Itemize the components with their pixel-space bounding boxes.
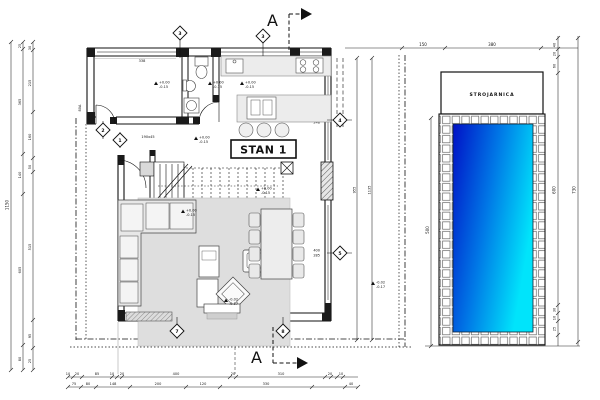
svg-text:80: 80 bbox=[18, 357, 22, 361]
floor-plan-svg: 1150 25 365 140 605 80 30 215 160 50 515… bbox=[0, 0, 600, 400]
bubble-3a: 3 bbox=[173, 26, 187, 40]
svg-text:150: 150 bbox=[419, 42, 427, 47]
bar-stools bbox=[239, 123, 289, 137]
bubble-5: 5 bbox=[333, 246, 347, 260]
svg-text:600: 600 bbox=[552, 186, 557, 194]
svg-text:1135: 1135 bbox=[368, 186, 372, 195]
svg-text:200: 200 bbox=[155, 382, 162, 386]
svg-text:3: 3 bbox=[178, 31, 181, 37]
svg-text:40: 40 bbox=[349, 382, 353, 386]
svg-text:80: 80 bbox=[86, 382, 90, 386]
wc-tank bbox=[195, 57, 208, 66]
pool-water bbox=[453, 124, 533, 332]
svg-text:20: 20 bbox=[231, 372, 235, 376]
bubble-3b: 3 bbox=[256, 29, 270, 43]
dining-set bbox=[249, 209, 304, 279]
svg-text:30: 30 bbox=[553, 308, 557, 312]
svg-text:-0.15: -0.15 bbox=[261, 191, 270, 195]
pilaster-column bbox=[321, 162, 333, 200]
wc-bowl bbox=[196, 66, 207, 79]
svg-text:-0.15: -0.15 bbox=[199, 140, 208, 144]
section-arrow-bottom bbox=[297, 357, 308, 369]
svg-text:-0.15: -0.15 bbox=[159, 85, 168, 89]
svg-text:8: 8 bbox=[281, 329, 284, 335]
svg-text:140: 140 bbox=[18, 172, 22, 179]
bubble-1: 1 bbox=[113, 133, 127, 147]
svg-text:1: 1 bbox=[118, 138, 121, 144]
svg-text:330: 330 bbox=[263, 382, 270, 386]
svg-text:515: 515 bbox=[28, 244, 32, 251]
cooktop bbox=[296, 58, 323, 73]
svg-text:-0.17: -0.17 bbox=[229, 302, 238, 306]
svg-text:3: 3 bbox=[261, 34, 264, 40]
kitchen bbox=[221, 56, 331, 137]
section-marker-top: A bbox=[267, 8, 312, 50]
svg-text:10: 10 bbox=[553, 316, 557, 320]
svg-text:25: 25 bbox=[553, 327, 557, 331]
svg-text:20: 20 bbox=[120, 372, 124, 376]
svg-text:10: 10 bbox=[339, 372, 343, 376]
svg-text:95: 95 bbox=[28, 334, 32, 338]
svg-text:-0.17: -0.17 bbox=[376, 285, 385, 289]
svg-text:75: 75 bbox=[72, 382, 76, 386]
svg-text:400: 400 bbox=[173, 372, 180, 376]
svg-text:-0.15: -0.15 bbox=[245, 85, 254, 89]
floor-plan-drawing: 1150 25 365 140 605 80 30 215 160 50 515… bbox=[0, 0, 600, 400]
pool-room-label: STROJARNICA bbox=[469, 92, 514, 98]
svg-text:148: 148 bbox=[110, 382, 117, 386]
bubble-2: 2 bbox=[96, 123, 110, 137]
svg-text:380: 380 bbox=[488, 42, 496, 47]
dim-left-total: 1150 bbox=[5, 199, 10, 210]
svg-text:120: 120 bbox=[200, 382, 207, 386]
svg-text:60: 60 bbox=[553, 64, 557, 68]
apartment-label: STAN 1 bbox=[231, 140, 296, 158]
svg-text:40: 40 bbox=[553, 43, 557, 47]
svg-text:A: A bbox=[267, 11, 278, 30]
svg-text:500: 500 bbox=[425, 226, 430, 234]
svg-text:20: 20 bbox=[328, 372, 332, 376]
svg-text:730: 730 bbox=[572, 186, 577, 194]
svg-text:A: A bbox=[251, 348, 262, 367]
svg-text:285: 285 bbox=[313, 254, 320, 258]
svg-text:STAN 1: STAN 1 bbox=[240, 144, 287, 157]
hall-note: 190x45 bbox=[141, 135, 154, 139]
svg-text:215: 215 bbox=[28, 80, 32, 87]
svg-text:10: 10 bbox=[66, 372, 70, 376]
section-arrow-top bbox=[301, 8, 312, 20]
pool-area: STROJARNICA bbox=[439, 72, 545, 345]
svg-text:85: 85 bbox=[95, 372, 99, 376]
svg-text:25: 25 bbox=[18, 44, 22, 48]
bathroom-fixtures bbox=[183, 57, 208, 113]
svg-text:4: 4 bbox=[338, 118, 341, 124]
bubble-4: 4 bbox=[333, 113, 347, 127]
svg-text:2: 2 bbox=[101, 128, 104, 134]
svg-text:365: 365 bbox=[18, 99, 22, 106]
svg-text:50: 50 bbox=[28, 165, 32, 169]
svg-text:605: 605 bbox=[18, 267, 22, 274]
svg-text:7: 7 bbox=[175, 329, 178, 335]
svg-text:5: 5 bbox=[338, 251, 341, 257]
svg-text:160: 160 bbox=[28, 134, 32, 141]
kitchen-sink bbox=[226, 59, 243, 73]
svg-text:10: 10 bbox=[110, 372, 114, 376]
svg-text:310: 310 bbox=[278, 372, 285, 376]
svg-text:400: 400 bbox=[313, 249, 320, 253]
svg-text:955: 955 bbox=[353, 187, 357, 194]
svg-text:25: 25 bbox=[28, 359, 32, 363]
tv-bench bbox=[204, 304, 240, 319]
bedroom-window-dim: 338 bbox=[139, 59, 146, 63]
island-sink bbox=[247, 97, 276, 119]
entry-mat bbox=[126, 312, 172, 321]
coffee-tables bbox=[197, 246, 219, 307]
svg-text:20: 20 bbox=[553, 52, 557, 56]
svg-text:-0.15: -0.15 bbox=[213, 85, 222, 89]
svg-text:-0.15: -0.15 bbox=[186, 213, 195, 217]
svg-text:20: 20 bbox=[75, 372, 79, 376]
door-note: 80A bbox=[78, 104, 82, 111]
svg-text:30: 30 bbox=[28, 46, 32, 50]
